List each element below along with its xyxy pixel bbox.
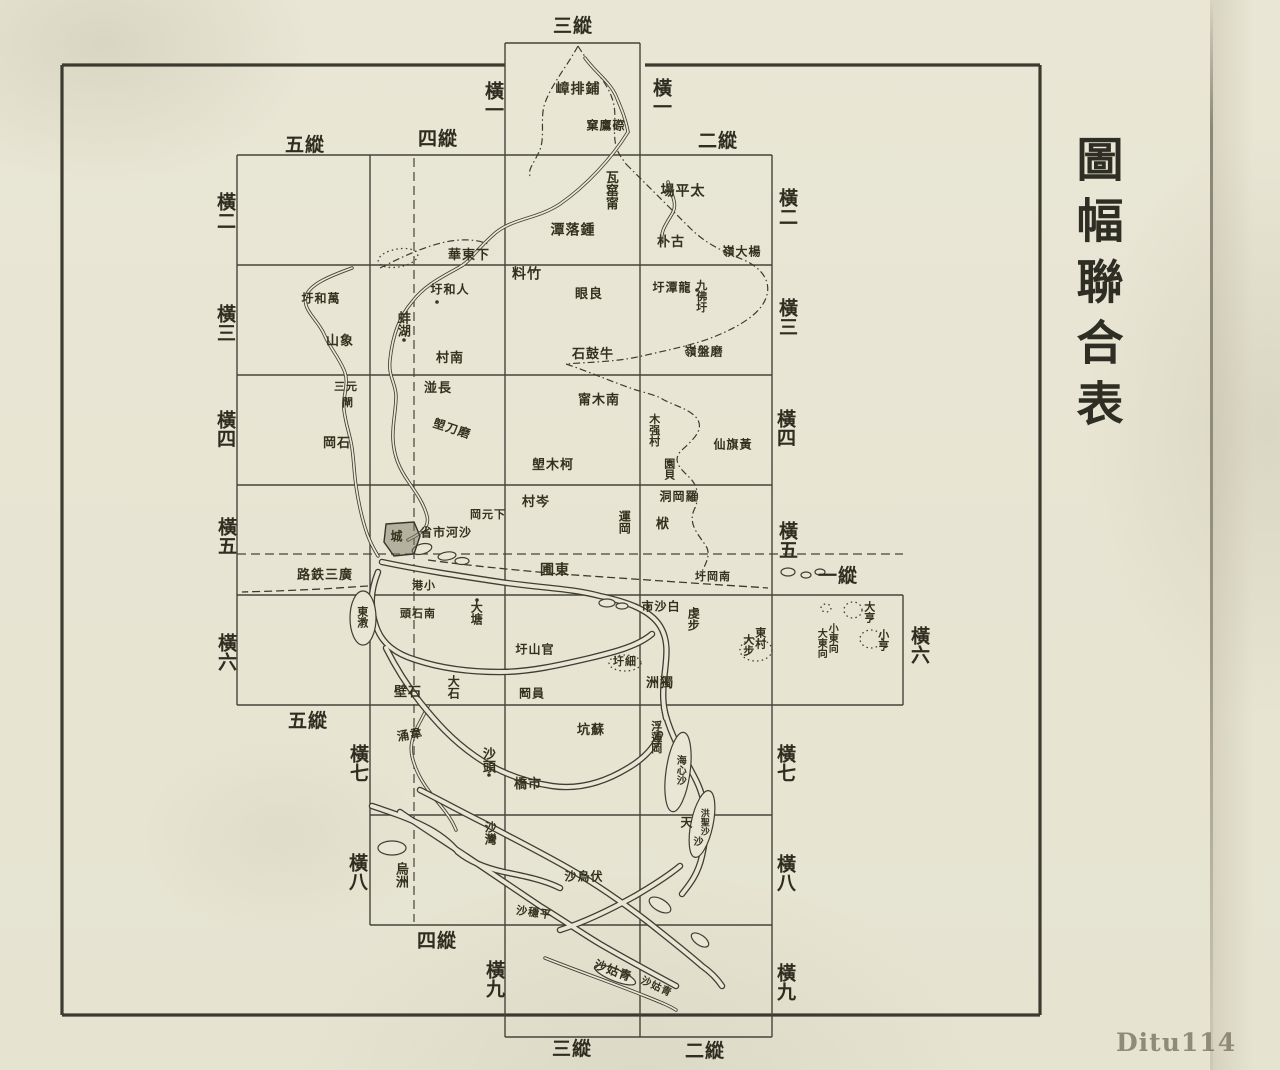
column-label: 四縱 [417,932,457,952]
column-label: 一縱 [818,567,858,587]
place-label: 小東向 [826,623,837,653]
place-label: 圩潭龍 [652,282,691,295]
map-sheet-index-title: 圖幅聯合表 [1061,135,1130,440]
place-label: 橋市 [514,778,542,792]
row-label-left: 橫五 [215,517,235,555]
column-label: 五縱 [285,136,325,156]
place-label: 路鉄三廣 [297,569,353,583]
place-label: 木强村 [648,414,660,447]
place-label: 閘 [342,397,354,409]
row-label-left: 橫八 [346,853,366,891]
row-label-right: 橫八 [774,854,794,892]
place-label: 三元 [334,381,358,393]
place-label: 料竹 [512,268,542,283]
place-label: 潭落鍾 [551,224,596,239]
place-label: 市沙白 [641,601,680,614]
place-label: 小亨 [877,629,889,651]
place-label: 圩細 [613,656,637,668]
place-label: 圩和人 [430,284,469,297]
place-label: 嶺盤磨 [684,346,723,359]
column-label: 三縱 [552,1040,592,1060]
place-label: 沙頭 [480,747,494,773]
column-label: 五縱 [288,712,328,732]
place-label: 仙旗黃 [713,439,752,452]
place-label: 運岡 [618,510,631,534]
place-label: 眼良 [575,288,603,302]
column-label: 二縱 [685,1042,725,1062]
row-label-right: 橫二 [776,188,796,226]
place-label: 石鼓牛 [572,348,614,362]
place-label: 港小 [412,580,436,592]
row-label-right: 橫六 [908,626,928,664]
row-label-right: 橫三 [776,298,796,336]
place-label: 大石 [447,675,460,699]
place-label: 朴古 [657,236,685,250]
place-label: 九佛圩 [695,280,707,313]
column-label: 三縱 [553,17,593,37]
place-label: 栿 [656,518,670,532]
place-label: 圩山官 [515,644,554,657]
place-label: 大塘 [470,601,483,625]
place-label: 海心沙 [674,755,685,785]
column-label: 二縱 [698,132,738,152]
place-label: 華東下 [448,249,490,263]
place-label: 圃東 [540,564,570,579]
place-label: 虔步 [687,607,700,631]
place-label: 岡石 [323,437,351,451]
row-label-left: 橫六 [215,633,235,671]
row-label-right: 橫七 [774,744,794,782]
place-label: 東村 [754,627,766,649]
page-fold-shadow [1213,0,1280,1070]
place-label: 岡員 [519,688,545,701]
place-label: 村南 [436,352,464,366]
place-label: 大亨 [863,601,875,623]
row-label-left: 橫七 [347,744,367,782]
place-label: 壁石 [394,686,422,700]
row-label-left: 橫三 [214,304,234,342]
place-label: 山象 [326,335,354,349]
row-label-left: 橫四 [214,410,234,448]
place-label: 場平太 [661,185,706,200]
column-label: 四縱 [418,130,458,150]
place-label: 洪聖沙 [698,809,707,836]
place-label: 園貝 [663,458,675,480]
sheet-grid [237,43,903,1037]
place-label: 省市河沙 [420,527,472,540]
place-label: 圩和萬 [301,293,340,306]
place-label: 塱木柯 [532,459,574,473]
place-label: 嶺大楊 [722,246,761,259]
place-label: 村岑 [522,496,550,510]
row-label-left: 橫一 [482,81,502,119]
place-label: 沙烏伏 [564,871,603,884]
place-label: 嶂排鋪 [556,83,601,98]
place-label: 城 [390,531,403,544]
place-label: 湴長 [424,382,452,396]
place-label: 坑蘇 [577,724,605,738]
place-label: 沙灣 [484,821,497,845]
row-label-right: 橫九 [774,963,794,1001]
place-label: 洞岡羅 [659,491,698,504]
place-label: 浮蓮岡 [650,721,662,754]
place-label: 洲獨 [646,677,674,691]
row-label-left: 橫二 [214,192,234,230]
place-label: 甯木南 [578,394,620,408]
place-label: 瓦窰甯 [603,171,617,210]
place-label: 岡元下 [470,509,506,521]
place-label: 烏洲 [393,862,407,888]
place-label: 沙 [694,838,705,849]
row-label-right: 橫四 [774,409,794,447]
row-label-right: 橫五 [776,521,796,559]
row-label-right: 橫一 [650,78,670,116]
row-label-left: 橫九 [483,960,503,998]
place-label: 蚌湖 [395,311,409,337]
place-label: 天 [680,817,693,830]
place-label: 大步 [742,634,754,656]
place-label: 東漖 [356,606,368,628]
place-label: 大東向 [815,628,826,658]
place-label: 窠鷹磜 [586,120,625,133]
place-label: 圩岡南 [695,571,731,583]
place-label: 頭石南 [400,608,436,620]
boundary-lines [380,46,768,576]
